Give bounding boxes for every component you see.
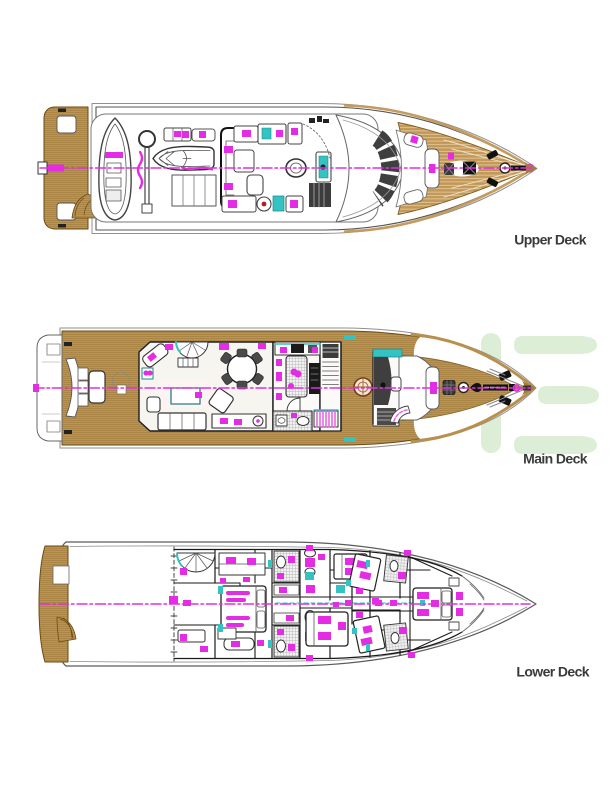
svg-text:Upper Deck: Upper Deck — [514, 232, 587, 248]
svg-text:Main Deck: Main Deck — [523, 451, 588, 467]
svg-text:Lower Deck: Lower Deck — [516, 664, 589, 680]
